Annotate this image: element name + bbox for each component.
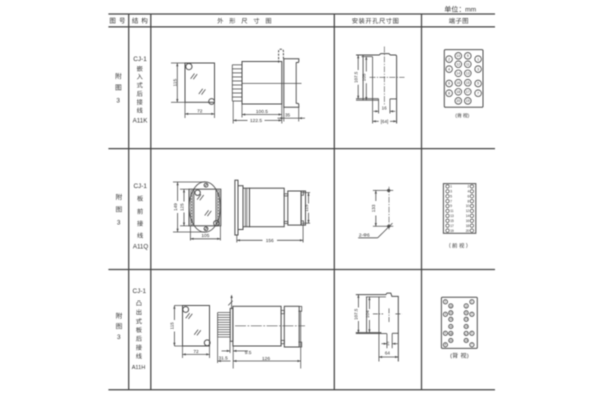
svg-text:12: 12 (466, 209, 470, 213)
svg-text:15: 15 (466, 81, 470, 85)
svg-text:115: 115 (173, 78, 179, 86)
svg-text:16: 16 (456, 81, 460, 85)
svg-text:156: 156 (266, 238, 274, 244)
svg-text:18: 18 (456, 90, 460, 94)
svg-text:2-Φ6: 2-Φ6 (359, 233, 370, 239)
svg-text:A11H: A11H (132, 365, 146, 371)
svg-text:17: 17 (450, 224, 454, 228)
svg-text:18: 18 (466, 224, 470, 228)
svg-text:5: 5 (450, 194, 452, 198)
svg-text:1: 1 (450, 185, 452, 189)
svg-text:10: 10 (456, 54, 460, 58)
svg-text:100.5: 100.5 (256, 109, 268, 115)
svg-text:16: 16 (466, 219, 470, 223)
svg-text:12: 12 (456, 62, 460, 66)
svg-text:9: 9 (450, 204, 452, 208)
svg-text:3: 3 (117, 219, 121, 226)
svg-text:11: 11 (450, 209, 454, 213)
svg-text:104: 104 (365, 310, 370, 318)
svg-text:72: 72 (193, 349, 199, 355)
svg-text:31.5: 31.5 (219, 355, 229, 361)
svg-text:13: 13 (450, 214, 454, 218)
svg-text:7: 7 (477, 91, 479, 95)
svg-text:9: 9 (467, 54, 469, 58)
svg-text:9.5: 9.5 (245, 350, 252, 356)
svg-text:4: 4 (448, 67, 450, 71)
svg-text:14: 14 (466, 214, 470, 218)
svg-text:3: 3 (477, 67, 479, 71)
svg-text:16: 16 (382, 105, 388, 110)
svg-text:8: 8 (468, 199, 470, 203)
svg-text:(: ( (450, 353, 452, 359)
svg-text:149: 149 (173, 203, 178, 211)
svg-text:72: 72 (197, 108, 203, 114)
svg-text:126: 126 (262, 356, 270, 362)
svg-text:6: 6 (448, 82, 450, 86)
svg-text:122.5: 122.5 (250, 118, 262, 124)
svg-text:8: 8 (448, 91, 450, 95)
svg-text:14: 14 (456, 71, 460, 75)
svg-text:3: 3 (450, 190, 452, 194)
svg-text:133: 133 (371, 204, 376, 212)
svg-text:6: 6 (468, 194, 470, 198)
svg-text:20: 20 (456, 99, 460, 103)
svg-text:11: 11 (466, 62, 470, 66)
svg-text:CJ-1: CJ-1 (133, 56, 147, 63)
svg-text:115: 115 (170, 322, 175, 330)
svg-text:3: 3 (117, 334, 121, 341)
svg-text:17: 17 (466, 90, 470, 94)
svg-text:2: 2 (468, 185, 470, 189)
svg-text:64: 64 (385, 350, 391, 355)
svg-text:107.5: 107.5 (354, 308, 359, 320)
svg-text:115: 115 (304, 204, 309, 212)
svg-text:10: 10 (466, 204, 470, 208)
svg-text:): ) (467, 353, 469, 359)
svg-text:19: 19 (450, 229, 454, 233)
svg-text:13: 13 (466, 71, 470, 75)
svg-text:A11K: A11K (133, 117, 149, 124)
svg-text:CJ-1: CJ-1 (133, 288, 147, 295)
svg-text:125: 125 (179, 203, 184, 211)
svg-text:4: 4 (468, 190, 470, 194)
svg-text:[64]: [64] (381, 119, 389, 124)
svg-text:105: 105 (201, 233, 209, 239)
svg-text:15: 15 (450, 219, 454, 223)
svg-text:CJ-1: CJ-1 (133, 183, 147, 190)
svg-text:35: 35 (285, 112, 291, 117)
svg-text:107.5: 107.5 (353, 71, 358, 83)
svg-text:105: 105 (362, 73, 367, 81)
svg-text:1: 1 (477, 57, 479, 61)
svg-text:7: 7 (450, 199, 452, 203)
svg-text:19: 19 (466, 99, 470, 103)
svg-text:3: 3 (116, 97, 120, 104)
svg-text:：mm: ：mm (459, 7, 477, 14)
svg-text:2: 2 (448, 57, 450, 61)
svg-text:20: 20 (466, 229, 470, 233)
svg-text:5: 5 (477, 82, 479, 86)
svg-text:A11Q: A11Q (133, 244, 149, 251)
svg-text:16: 16 (385, 341, 390, 346)
